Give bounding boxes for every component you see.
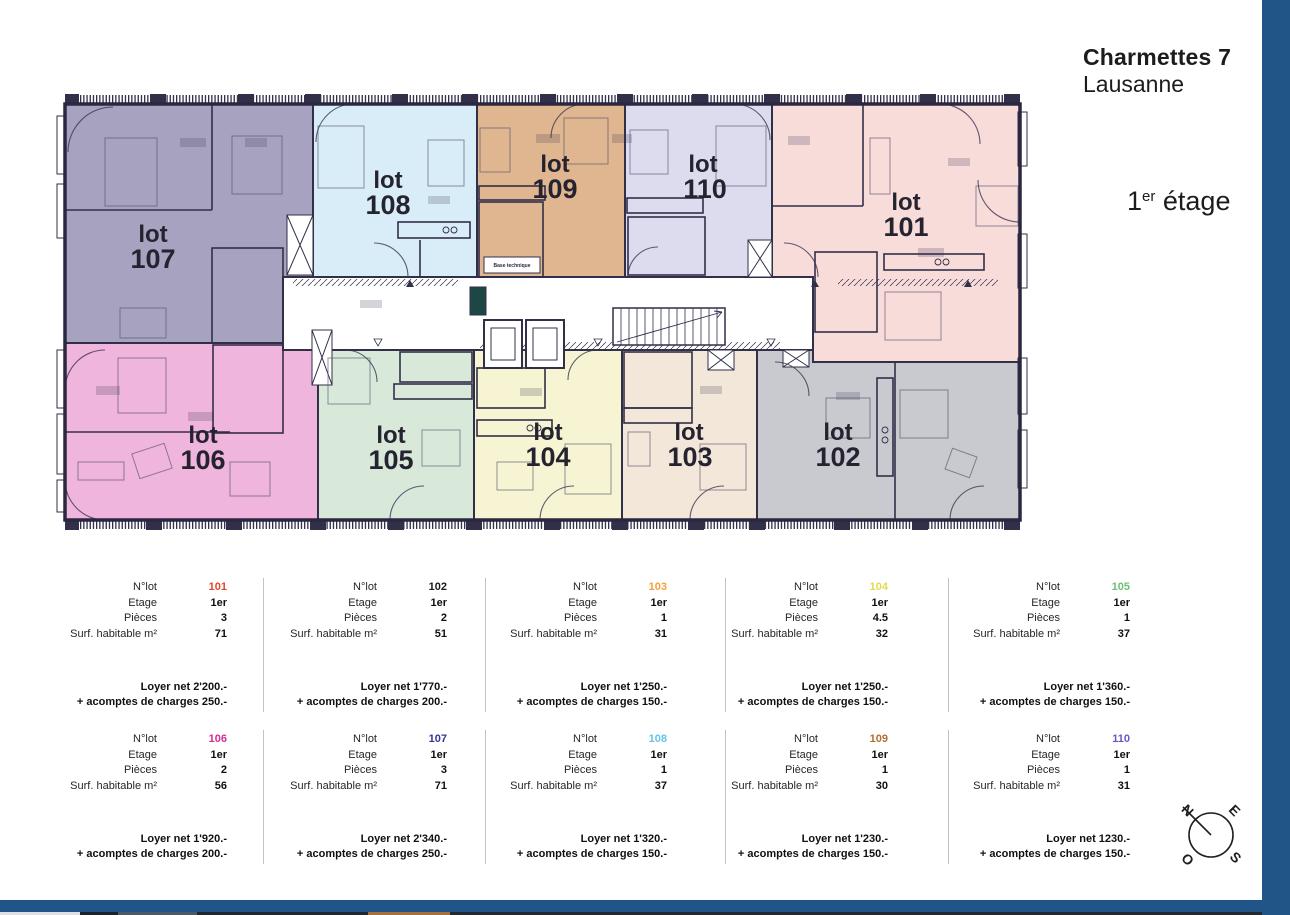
- pieces-value: 1: [597, 611, 667, 627]
- rent-line: Loyer net 1'250.-: [477, 680, 667, 695]
- svg-text:109: 109: [532, 174, 577, 204]
- lot-info-card-107: N°lot107 Etage1er Pièces3 Surf. habitabl…: [257, 732, 447, 862]
- table-divider: [725, 578, 726, 712]
- etage-value: 1er: [157, 748, 227, 764]
- lot-number: 101: [157, 580, 227, 596]
- charges-line: + acomptes de charges 200.-: [37, 847, 227, 862]
- row-label: Etage: [257, 596, 377, 612]
- row-label: N°lot: [37, 580, 157, 596]
- charges-line: + acomptes de charges 150.-: [477, 695, 667, 710]
- lot-info-card-105: N°lot105 Etage1er Pièces1 Surf. habitabl…: [940, 580, 1130, 710]
- lot-info-card-104: N°lot104 Etage1er Pièces4.5 Surf. habita…: [698, 580, 888, 710]
- row-label: Etage: [940, 596, 1060, 612]
- lot-number: 108: [597, 732, 667, 748]
- row-label: N°lot: [698, 580, 818, 596]
- surface-value: 30: [818, 779, 888, 795]
- rent-block: Loyer net 2'340.-+ acomptes de charges 2…: [257, 832, 447, 862]
- row-label: Pièces: [37, 611, 157, 627]
- surface-value: 32: [818, 627, 888, 643]
- charges-line: + acomptes de charges 150.-: [477, 847, 667, 862]
- rent-line: Loyer net 1'230.-: [698, 832, 888, 847]
- rent-block: Loyer net 1'770.-+ acomptes de charges 2…: [257, 680, 447, 710]
- table-divider: [485, 578, 486, 712]
- surface-value: 71: [157, 627, 227, 643]
- svg-text:110: 110: [683, 174, 727, 204]
- table-divider: [725, 730, 726, 864]
- pieces-value: 3: [157, 611, 227, 627]
- rent-block: Loyer net 1230.-+ acomptes de charges 15…: [940, 832, 1130, 862]
- rent-line: Loyer net 1'250.-: [698, 680, 888, 695]
- svg-text:102: 102: [815, 442, 860, 472]
- region-lot-102: [757, 350, 1020, 520]
- charges-line: + acomptes de charges 150.-: [698, 847, 888, 862]
- row-label: Pièces: [37, 763, 157, 779]
- rent-line: Loyer net 1'360.-: [940, 680, 1130, 695]
- charges-line: + acomptes de charges 150.-: [698, 695, 888, 710]
- surface-value: 31: [1060, 779, 1130, 795]
- rent-line: Loyer net 1'920.-: [37, 832, 227, 847]
- lot-number: 102: [377, 580, 447, 596]
- svg-text:103: 103: [667, 442, 712, 472]
- row-label: Etage: [477, 748, 597, 764]
- technical-shaft: [470, 287, 486, 315]
- row-label: Surf. habitable m²: [477, 779, 597, 795]
- pieces-value: 4.5: [818, 611, 888, 627]
- row-label: Etage: [940, 748, 1060, 764]
- row-label: N°lot: [257, 732, 377, 748]
- svg-text:107: 107: [130, 244, 175, 274]
- compass-south: S: [1227, 848, 1245, 866]
- svg-text:105: 105: [368, 445, 413, 475]
- row-label: Surf. habitable m²: [940, 779, 1060, 795]
- etage-value: 1er: [377, 596, 447, 612]
- row-label: N°lot: [940, 580, 1060, 596]
- lot-info-card-108: N°lot108 Etage1er Pièces1 Surf. habitabl…: [477, 732, 667, 862]
- elevator-left: [484, 320, 522, 368]
- compass-north: N: [1178, 801, 1196, 819]
- table-divider: [948, 730, 949, 864]
- row-label: Etage: [37, 748, 157, 764]
- etage-value: 1er: [818, 748, 888, 764]
- svg-text:104: 104: [525, 442, 570, 472]
- rent-block: Loyer net 1'250.-+ acomptes de charges 1…: [477, 680, 667, 710]
- etage-value: 1er: [818, 596, 888, 612]
- row-label: Surf. habitable m²: [940, 627, 1060, 643]
- svg-text:101: 101: [883, 212, 928, 242]
- svg-text:108: 108: [365, 190, 410, 220]
- brochure-page: Charmettes 7 Lausanne 1er étage: [0, 0, 1290, 915]
- charges-line: + acomptes de charges 200.-: [257, 695, 447, 710]
- row-label: Pièces: [698, 611, 818, 627]
- rent-block: Loyer net 2'200.-+ acomptes de charges 2…: [37, 680, 227, 710]
- rent-block: Loyer net 1'920.-+ acomptes de charges 2…: [37, 832, 227, 862]
- lot-number: 105: [1060, 580, 1130, 596]
- rent-line: Loyer net 2'200.-: [37, 680, 227, 695]
- pieces-value: 1: [597, 763, 667, 779]
- svg-text:106: 106: [180, 445, 225, 475]
- rent-line: Loyer net 1230.-: [940, 832, 1130, 847]
- row-label: Surf. habitable m²: [257, 627, 377, 643]
- surface-value: 31: [597, 627, 667, 643]
- row-label: Surf. habitable m²: [37, 779, 157, 795]
- surface-value: 51: [377, 627, 447, 643]
- rent-block: Loyer net 1'360.-+ acomptes de charges 1…: [940, 680, 1130, 710]
- rent-line: Loyer net 1'320.-: [477, 832, 667, 847]
- row-label: Surf. habitable m²: [37, 627, 157, 643]
- row-label: Etage: [37, 596, 157, 612]
- lot-info-card-101: N°lot101 Etage1er Pièces3 Surf. habitabl…: [37, 580, 227, 710]
- etage-value: 1er: [597, 748, 667, 764]
- lot-number: 110: [1060, 732, 1130, 748]
- compass-east: E: [1226, 801, 1244, 819]
- rent-line: Loyer net 1'770.-: [257, 680, 447, 695]
- footer-accent-bar: [0, 900, 1290, 912]
- row-label: Etage: [698, 596, 818, 612]
- row-label: Pièces: [698, 763, 818, 779]
- row-label: Surf. habitable m²: [698, 779, 818, 795]
- row-label: Surf. habitable m²: [477, 627, 597, 643]
- row-label: Pièces: [257, 763, 377, 779]
- surface-value: 37: [1060, 627, 1130, 643]
- etage-value: 1er: [377, 748, 447, 764]
- charges-line: + acomptes de charges 150.-: [940, 847, 1130, 862]
- etage-value: 1er: [157, 596, 227, 612]
- table-divider: [263, 730, 264, 864]
- right-accent-bar: [1262, 0, 1290, 915]
- row-label: Pièces: [940, 763, 1060, 779]
- lot-info-card-109: N°lot109 Etage1er Pièces1 Surf. habitabl…: [698, 732, 888, 862]
- row-label: Pièces: [940, 611, 1060, 627]
- pieces-value: 1: [1060, 763, 1130, 779]
- table-divider: [948, 578, 949, 712]
- etage-value: 1er: [1060, 596, 1130, 612]
- pieces-value: 3: [377, 763, 447, 779]
- charges-line: + acomptes de charges 150.-: [940, 695, 1130, 710]
- row-label: Etage: [698, 748, 818, 764]
- row-label: Surf. habitable m²: [257, 779, 377, 795]
- lot-number: 106: [157, 732, 227, 748]
- lot-number: 103: [597, 580, 667, 596]
- lot-info-card-103: N°lot103 Etage1er Pièces1 Surf. habitabl…: [477, 580, 667, 710]
- base-technique-box: Base technique: [484, 257, 540, 273]
- charges-line: + acomptes de charges 250.-: [37, 695, 227, 710]
- surface-value: 37: [597, 779, 667, 795]
- pieces-value: 1: [818, 763, 888, 779]
- row-label: N°lot: [37, 732, 157, 748]
- lot-number: 104: [818, 580, 888, 596]
- row-label: Etage: [257, 748, 377, 764]
- row-label: N°lot: [477, 580, 597, 596]
- base-technique-label: Base technique: [494, 263, 531, 269]
- row-label: N°lot: [477, 732, 597, 748]
- row-label: Pièces: [477, 763, 597, 779]
- pieces-value: 2: [157, 763, 227, 779]
- surface-value: 71: [377, 779, 447, 795]
- rent-block: Loyer net 1'230.-+ acomptes de charges 1…: [698, 832, 888, 862]
- pieces-value: 1: [1060, 611, 1130, 627]
- charges-line: + acomptes de charges 250.-: [257, 847, 447, 862]
- row-label: Pièces: [257, 611, 377, 627]
- row-label: N°lot: [698, 732, 818, 748]
- etage-value: 1er: [597, 596, 667, 612]
- elevator-right: [526, 320, 564, 368]
- floor-plan: Base technique: [0, 0, 1290, 560]
- rent-line: Loyer net 2'340.-: [257, 832, 447, 847]
- rent-block: Loyer net 1'250.-+ acomptes de charges 1…: [698, 680, 888, 710]
- row-label: Etage: [477, 596, 597, 612]
- lot-info-card-102: N°lot102 Etage1er Pièces2 Surf. habitabl…: [257, 580, 447, 710]
- lot-number: 107: [377, 732, 447, 748]
- rent-block: Loyer net 1'320.-+ acomptes de charges 1…: [477, 832, 667, 862]
- surface-value: 56: [157, 779, 227, 795]
- etage-value: 1er: [1060, 748, 1130, 764]
- lot-info-card-106: N°lot106 Etage1er Pièces2 Surf. habitabl…: [37, 732, 227, 862]
- table-divider: [485, 730, 486, 864]
- staircase: [613, 308, 725, 345]
- row-label: N°lot: [940, 732, 1060, 748]
- lot-info-card-110: N°lot110 Etage1er Pièces1 Surf. habitabl…: [940, 732, 1130, 862]
- table-divider: [263, 578, 264, 712]
- compass-icon: N E S O: [1168, 792, 1268, 892]
- row-label: Surf. habitable m²: [698, 627, 818, 643]
- compass-west: O: [1178, 850, 1197, 869]
- row-label: Pièces: [477, 611, 597, 627]
- pieces-value: 2: [377, 611, 447, 627]
- row-label: N°lot: [257, 580, 377, 596]
- lot-number: 109: [818, 732, 888, 748]
